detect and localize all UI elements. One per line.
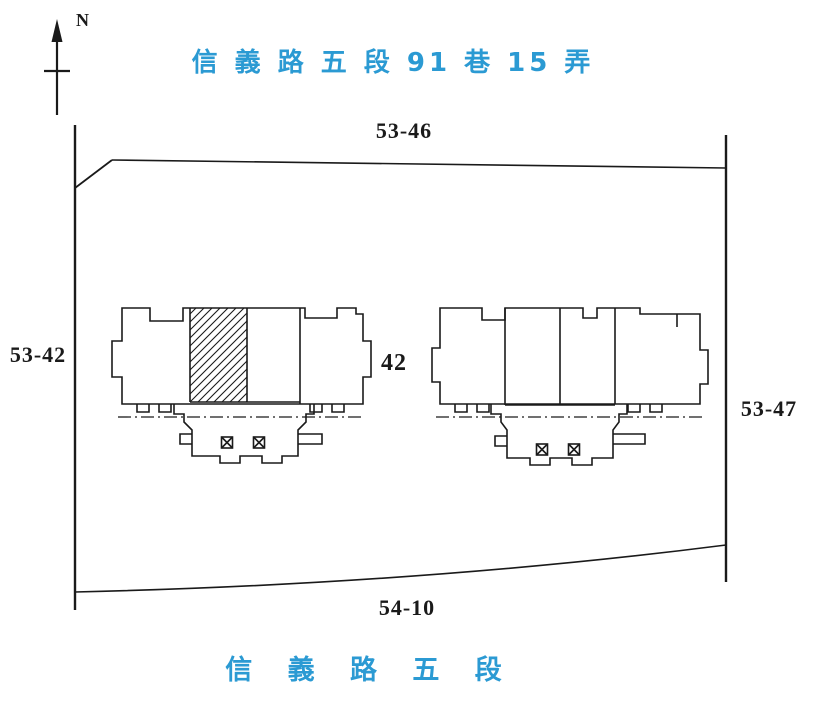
parcel-label-north: 53-46	[376, 118, 432, 144]
hatched-unit	[190, 308, 247, 402]
lobby-right	[491, 404, 627, 465]
north-label: N	[76, 10, 89, 31]
lobby-left	[174, 404, 314, 463]
boundary-north-line	[112, 160, 726, 168]
north-arrow-icon	[44, 19, 70, 115]
parcel-label-east: 53-47	[741, 396, 797, 422]
street-label-top: 信 義 路 五 段 91 巷 15 弄	[192, 42, 595, 79]
elevator-icon	[222, 437, 233, 448]
unit-dividers-right	[505, 308, 615, 405]
elevator-icon	[537, 444, 548, 455]
site-plan: N 信 義 路 五 段 91 巷 15 弄 53-46 53-42 53-47 …	[0, 0, 819, 720]
boundary-chamfer-line	[75, 160, 112, 188]
elevator-icon	[569, 444, 580, 455]
lobby-side-tabs-left	[180, 434, 322, 444]
building-left	[112, 308, 371, 463]
street-label-bottom: 信 義 路 五 段	[225, 648, 515, 687]
building-number-label: 42	[381, 350, 407, 377]
elevator-icon	[254, 437, 265, 448]
parcel-label-south: 54-10	[379, 595, 435, 621]
building-right	[432, 308, 708, 465]
parcel-label-west: 53-42	[10, 342, 66, 368]
building-right-outline	[432, 308, 708, 404]
boundary-south-line	[75, 545, 726, 592]
feet-tabs-left	[137, 404, 344, 412]
